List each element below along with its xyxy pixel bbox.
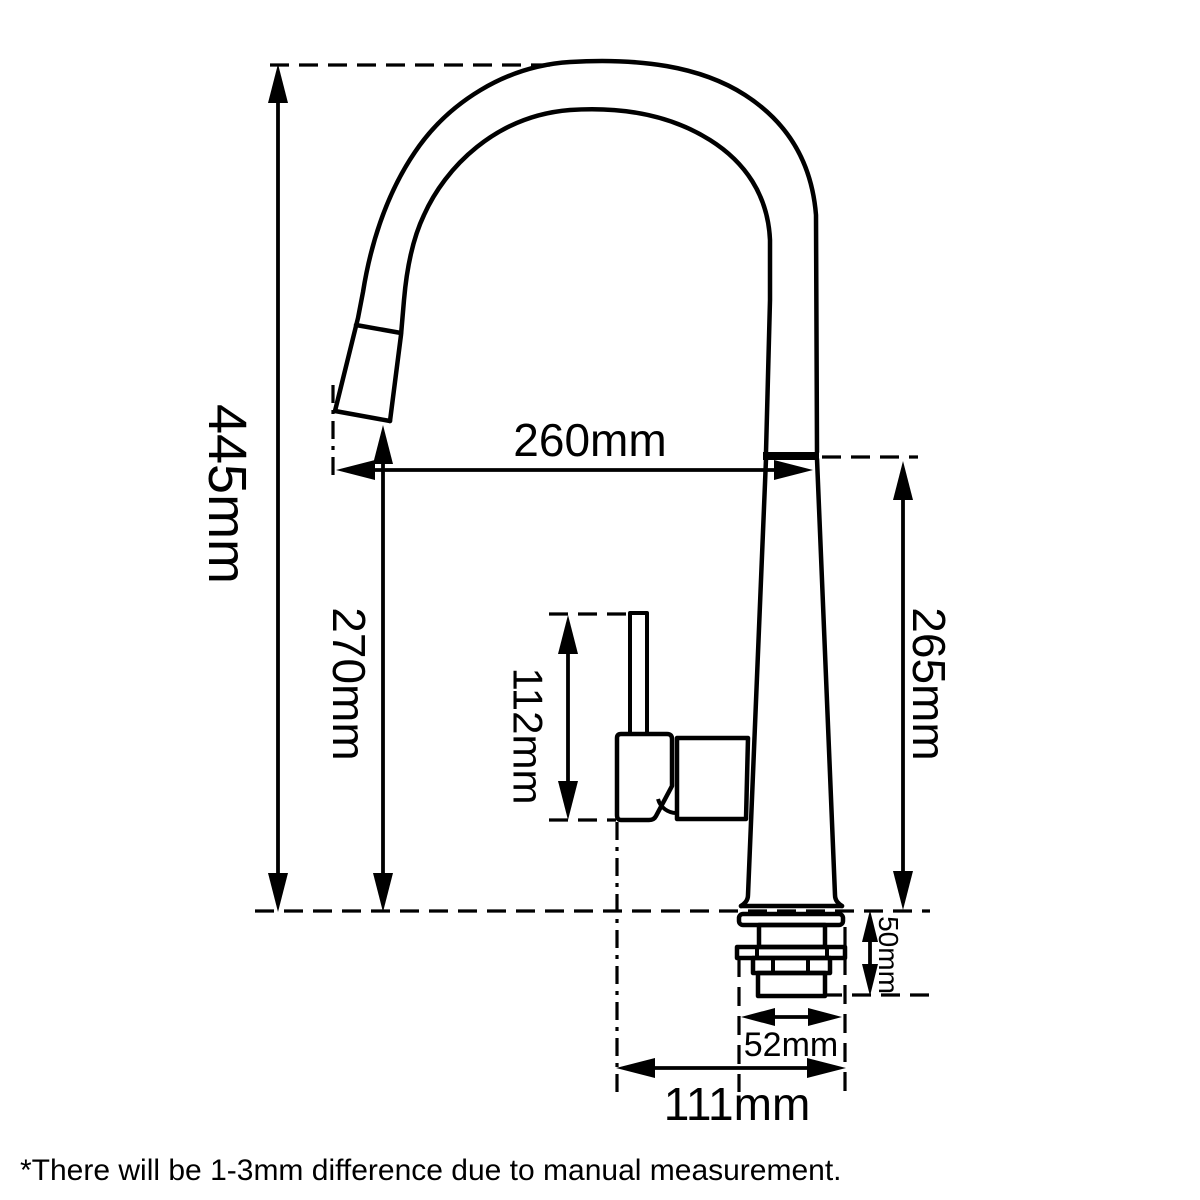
faucet-dimension-diagram: 445mm 270mm 260mm 265mm 112mm 50mm 52mm <box>0 0 1200 1200</box>
dim-260-arrow-right <box>774 460 813 480</box>
dim-112: 112mm <box>504 615 578 820</box>
handle-connector <box>677 738 748 819</box>
body-left-edge <box>741 459 766 906</box>
dim-label-265: 265mm <box>903 607 955 760</box>
dim-112-arrow-down <box>558 781 578 820</box>
threaded-shank <box>758 973 825 996</box>
dim-52-arrow-right <box>808 1008 842 1026</box>
dim-270: 270mm <box>323 425 393 912</box>
dim-445: 445mm <box>197 64 288 912</box>
faucet-base <box>737 914 845 996</box>
faucet-handle <box>617 613 748 820</box>
dim-52-arrow-left <box>741 1008 775 1026</box>
dim-270-arrow-up <box>373 425 393 464</box>
dim-label-52: 52mm <box>744 1026 838 1064</box>
spray-head-joint <box>356 325 401 333</box>
dim-111-arrow-left <box>616 1058 655 1078</box>
dim-112-arrow-up <box>558 615 578 654</box>
faucet-body <box>741 459 842 906</box>
extension-lines <box>255 65 930 1092</box>
spout-inner-edge <box>390 109 770 452</box>
dim-50: 50mm <box>862 910 904 996</box>
faucet-spout <box>335 61 819 456</box>
dim-265-arrow-down <box>893 871 913 910</box>
dim-270-arrow-down <box>373 873 393 912</box>
dim-445-arrow-up <box>268 64 288 103</box>
dim-label-260: 260mm <box>513 414 666 466</box>
dim-label-445: 445mm <box>197 404 257 584</box>
dim-260: 260mm <box>336 414 813 480</box>
base-stem <box>759 925 825 947</box>
dim-52: 52mm <box>741 1008 842 1064</box>
handle-lever <box>630 613 647 734</box>
dim-label-270: 270mm <box>323 607 375 760</box>
diagram-svg: 445mm 270mm 260mm 265mm 112mm 50mm 52mm <box>0 0 1200 1200</box>
dim-260-arrow-left <box>336 460 375 480</box>
dim-label-50: 50mm <box>873 916 904 994</box>
dim-111: 111mm <box>616 1058 846 1130</box>
footnote: *There will be 1-3mm difference due to m… <box>20 1154 842 1187</box>
body-right-edge <box>817 459 842 906</box>
spray-head-outlet <box>335 411 390 421</box>
dim-265: 265mm <box>893 461 955 910</box>
dim-445-arrow-down <box>268 873 288 912</box>
dim-label-111: 111mm <box>664 1078 811 1130</box>
spout-outer-edge <box>335 61 817 452</box>
dim-265-arrow-up <box>893 461 913 500</box>
dim-label-112: 112mm <box>504 668 551 805</box>
